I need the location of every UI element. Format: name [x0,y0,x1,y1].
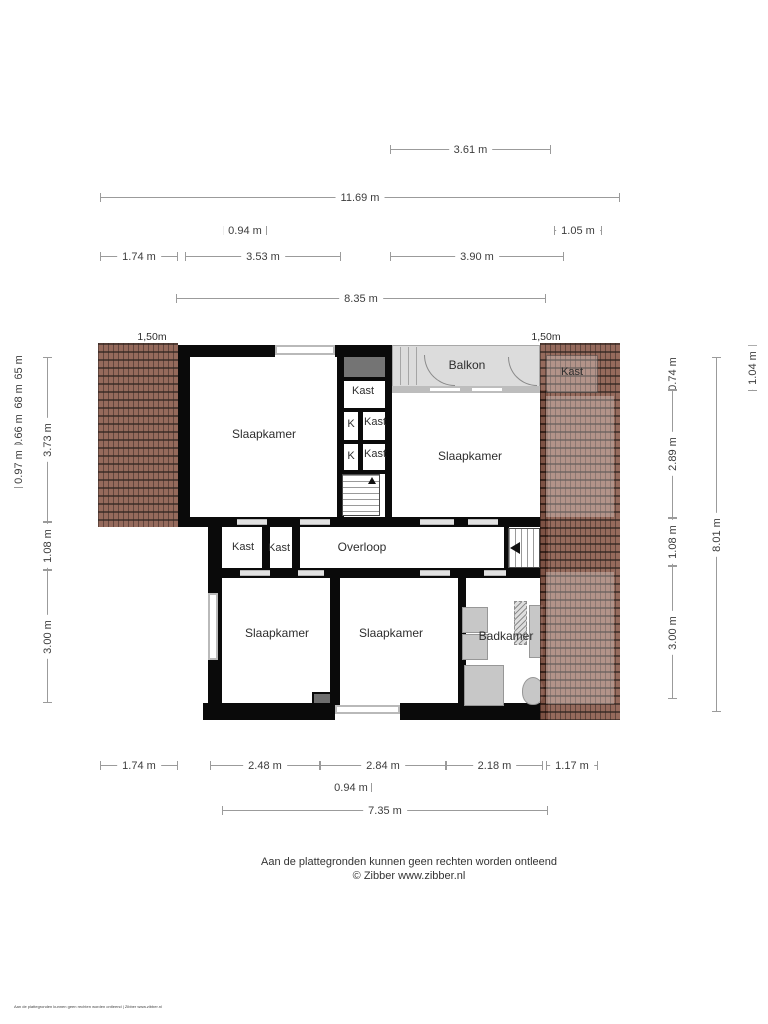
dim-right-289: 2.89 m [672,390,673,518]
dim-top-total-width: 11.69 m [100,197,620,198]
door-opening [420,570,450,576]
dim-top-390: 3.90 m [390,256,564,257]
roof-light-patch [546,572,614,704]
dim-left-097: 0.97 m [18,445,19,488]
dim-left-108: 1.08 m [47,522,48,570]
room-label-slaapkamer-bm: Slaapkamer [359,626,423,640]
room-label-kast-roof: Kast [561,366,583,378]
roofline-label-right: 1,50m [531,331,560,343]
footer-copyright: © Zibber www.zibber.nl [353,870,466,882]
wall-top-mid [335,345,392,357]
dim-right-300: 3.00 m [672,566,673,699]
window-pane [472,388,502,391]
dim-bottom-building-width: 7.35 m [222,810,548,811]
room-label-balkon: Balkon [449,358,486,372]
dim-top-balkon-width: 3.61 m [390,149,551,150]
shower [464,665,504,706]
wall-top-left [178,345,275,357]
window-pane [430,388,460,391]
roofline-label-left: 1,50m [137,331,166,343]
room-label-k-1: K [347,418,354,430]
dim-top-094: 0.94 m [223,230,267,231]
balcony-window-band [392,386,540,393]
stairs-up-arrow-icon [368,477,376,484]
room-label-slaapkamer-tr: Slaapkamer [438,449,502,463]
door-opening [240,570,270,576]
door-opening [484,570,506,576]
door-opening [237,519,267,525]
room-label-k-2: K [347,450,354,462]
dim-right-total-height: 8.01 m [716,357,717,712]
window-top [275,345,335,355]
room-label-kast-mid-2: Kast [364,448,386,460]
floorplan-page: 3.61 m 11.69 m 0.94 m 1.05 m 1.74 m 3.53… [0,0,768,1024]
roof-area-left [98,343,178,527]
dim-top-174: 1.74 m [100,256,178,257]
wall-south-left [203,703,335,720]
footer-disclaimer: Aan de plattegronden kunnen geen rechten… [261,856,557,868]
wall-closet-h3 [337,440,392,444]
door-opening [300,519,330,525]
dim-left-300: 3.00 m [47,570,48,703]
balcony-rail [400,347,401,385]
dim-right-074: 0.74 m [672,357,673,390]
balcony-rail [416,347,417,385]
wall-closet-h2 [337,408,392,412]
door-opening [420,519,454,525]
door-opening [468,519,498,525]
room-label-kast-mid-1: Kast [364,416,386,428]
dim-bottom-117: 1.17 m [546,765,598,766]
wall-closet-h1 [337,377,392,381]
wall-west-upper [178,345,190,527]
dim-top-building-width: 8.35 m [176,298,546,299]
dim-bottom-284: 2.84 m [320,765,446,766]
room-label-slaapkamer-bl: Slaapkamer [245,626,309,640]
room-label-slaapkamer-tl: Slaapkamer [232,427,296,441]
dim-bottom-248: 2.48 m [210,765,320,766]
window-west [208,593,218,660]
void-area [344,357,385,377]
wall-closet-hall-2 [292,527,300,568]
dim-bottom-094: 0.94 m [330,787,372,788]
dim-top-105: 1.05 m [554,230,602,231]
balcony-rail [408,347,409,385]
roof-light-patch [546,396,614,517]
dim-left-066: 0.66 m [18,416,19,445]
dim-top-353: 3.53 m [185,256,341,257]
stairs-down-arrow-icon [510,542,520,554]
door-opening [298,570,324,576]
chimney-box [312,692,332,705]
window-south [335,705,400,714]
room-label-kast-hall-2: Kast [268,542,290,554]
room-label-kast-top: Kast [352,385,374,397]
room-label-kast-hall-1: Kast [232,541,254,553]
wall-closet-mid [358,408,363,474]
dim-bottom-174: 1.74 m [100,765,178,766]
room-label-badkamer: Badkamer [479,629,534,643]
dim-right-104: 1.04 m [752,345,753,391]
fineprint-text: Aan de plattegronden kunnen geen rechten… [14,1004,162,1009]
room-label-overloop: Overloop [338,540,387,554]
wall-bedroom-divider-1 [330,578,340,708]
dim-right-108: 1.08 m [672,518,673,566]
dim-left-373: 3.73 m [47,357,48,522]
dim-bottom-218: 2.18 m [446,765,543,766]
